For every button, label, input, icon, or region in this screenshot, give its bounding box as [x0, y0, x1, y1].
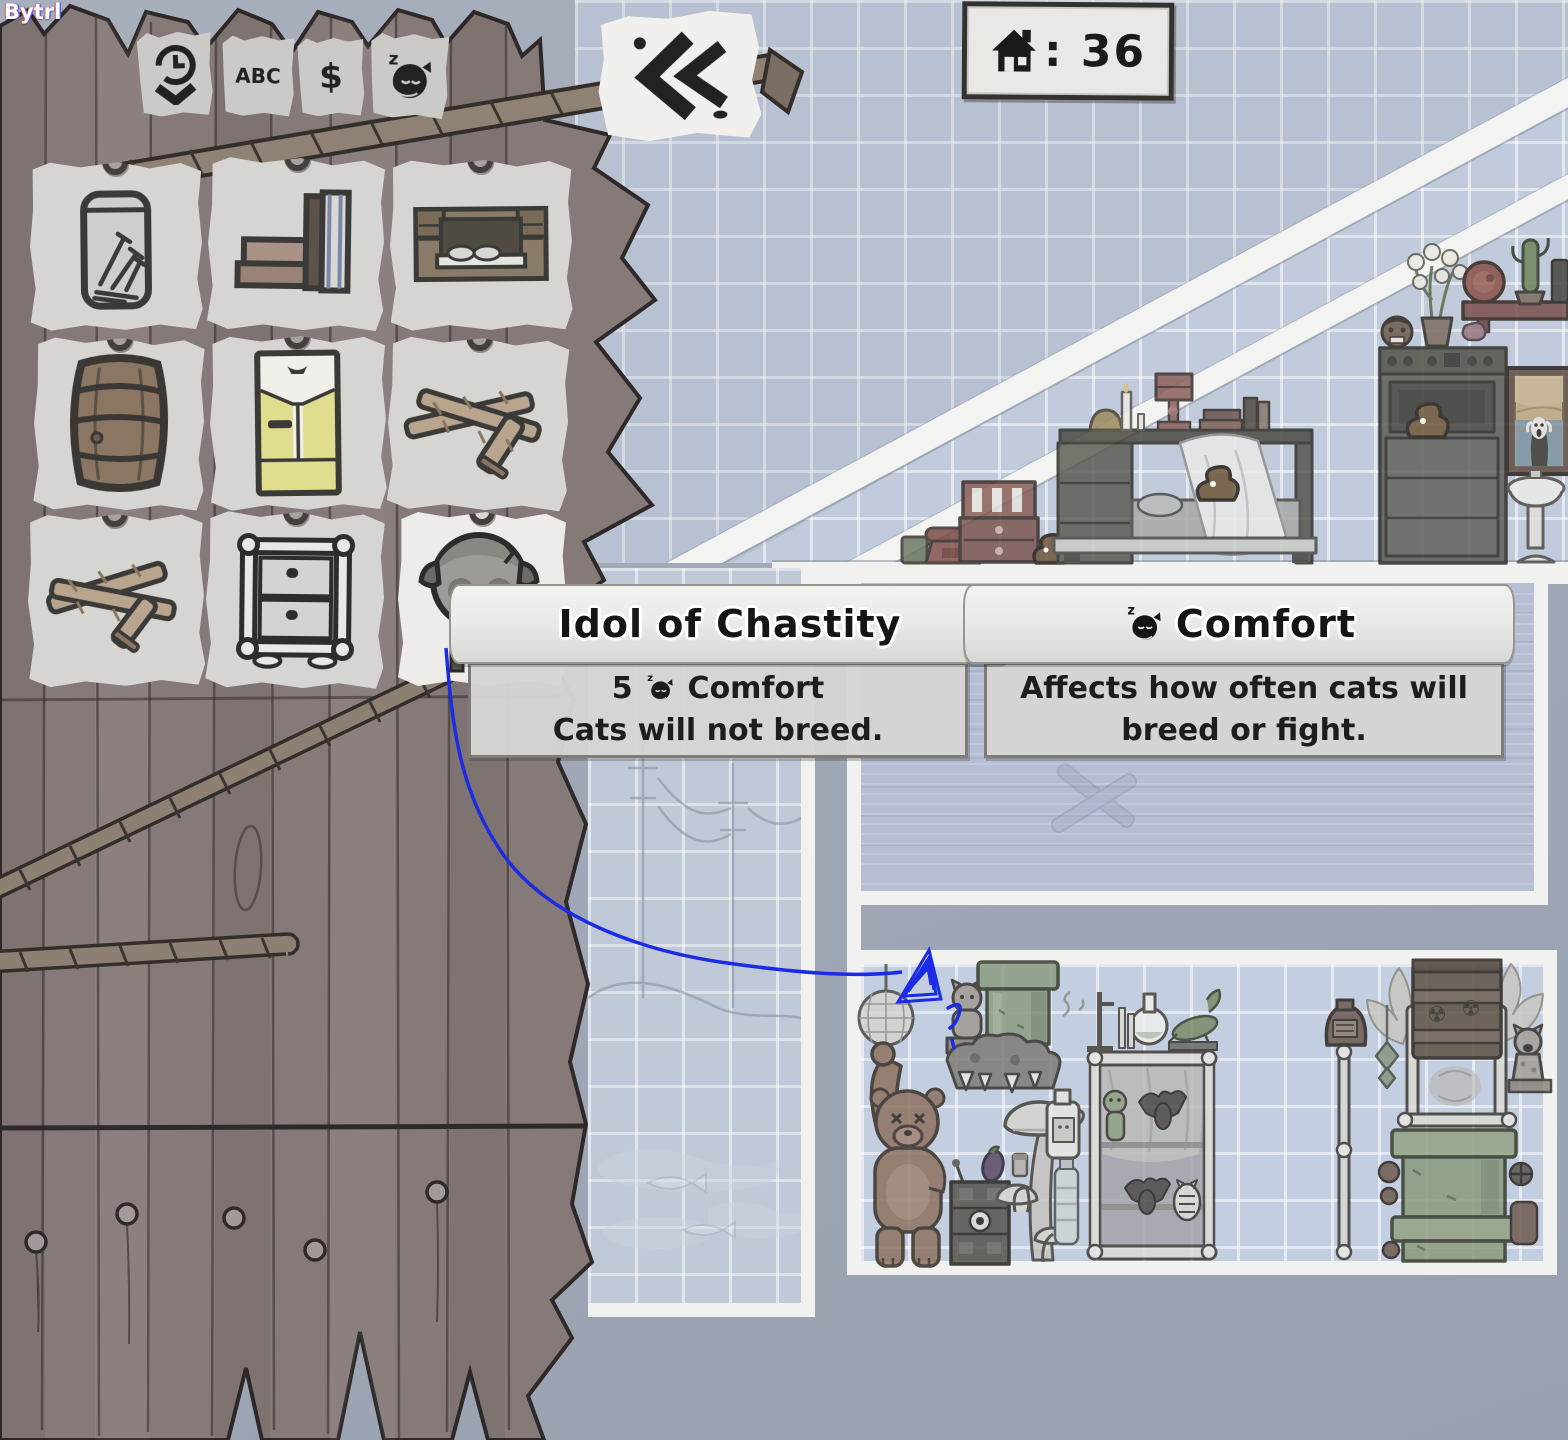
svg-text:z: z: [388, 49, 399, 69]
bone-dresser-icon: [227, 529, 363, 670]
barrel-icon: [58, 353, 179, 494]
game-screen: $: [0, 0, 1568, 1440]
wood-planks-icon: [402, 358, 554, 491]
tooltip-stat-body: Affects how often cats will breed or fig…: [984, 662, 1504, 758]
room-lower[interactable]: [847, 950, 1557, 1275]
tooltip-stat-description: Affects how often cats will breed or fig…: [1017, 668, 1471, 752]
price-sort-icon: $: [319, 57, 343, 97]
catalog-item-barrel[interactable]: [33, 337, 204, 510]
watermark: Bytrl: [4, 0, 61, 24]
sort-tab-price[interactable]: $: [297, 37, 364, 116]
catalog-item-wood-planks-alt[interactable]: [27, 512, 206, 687]
tooltip-item-stat-line: 5 z Comfort: [612, 668, 824, 710]
comfort-cat-icon: z: [643, 672, 677, 704]
comfort-sort-icon: z: [379, 46, 439, 106]
house-capacity-counter: : 36: [962, 1, 1175, 100]
stat-value: 5: [612, 671, 633, 706]
catalog-item-wall-bed[interactable]: [389, 159, 572, 331]
wood-planks-alt-icon: [40, 534, 192, 667]
collapse-panel-button[interactable]: [596, 9, 762, 143]
catalog-item-books[interactable]: [207, 157, 385, 331]
tooltip-item-title-banner: Idol of Chastity: [449, 584, 1011, 664]
catalog-item-wood-planks[interactable]: [387, 336, 570, 511]
jar-of-nails-icon: [65, 175, 166, 316]
books-icon: [233, 183, 359, 305]
refrigerator-icon: [247, 347, 349, 498]
stat-name: Comfort: [688, 671, 825, 706]
house-icon: [990, 25, 1040, 75]
wall-bed-icon: [411, 194, 552, 295]
sort-tab-comfort[interactable]: z: [369, 33, 450, 120]
upper-floor: [772, 562, 1568, 584]
svg-text:z: z: [1127, 604, 1135, 619]
catalog-item-bone-dresser[interactable]: [205, 511, 385, 689]
catalog-item-jar-of-nails[interactable]: [29, 161, 203, 331]
house-count: : 36: [1044, 25, 1147, 77]
sort-tab-alphabetical[interactable]: ABC: [221, 35, 294, 116]
history-sort-icon: [148, 42, 202, 106]
tooltip-item-body: 5 z Comfort Cats will not breed.: [468, 662, 968, 758]
tooltip-item-title: Idol of Chastity: [559, 602, 902, 646]
svg-text:z: z: [647, 673, 653, 684]
catalog-item-refrigerator[interactable]: [209, 335, 387, 511]
tooltip-stat-title: Comfort: [1176, 602, 1356, 646]
comfort-cat-icon: z: [1122, 603, 1166, 645]
abc-sort-icon: ABC: [235, 64, 281, 89]
tooltip-item-description: Cats will not breed.: [553, 710, 884, 752]
tooltip-stat-title-banner: z Comfort: [963, 584, 1515, 664]
sort-tab-recent[interactable]: [137, 31, 214, 118]
collapse-panel-icon: [617, 24, 740, 128]
